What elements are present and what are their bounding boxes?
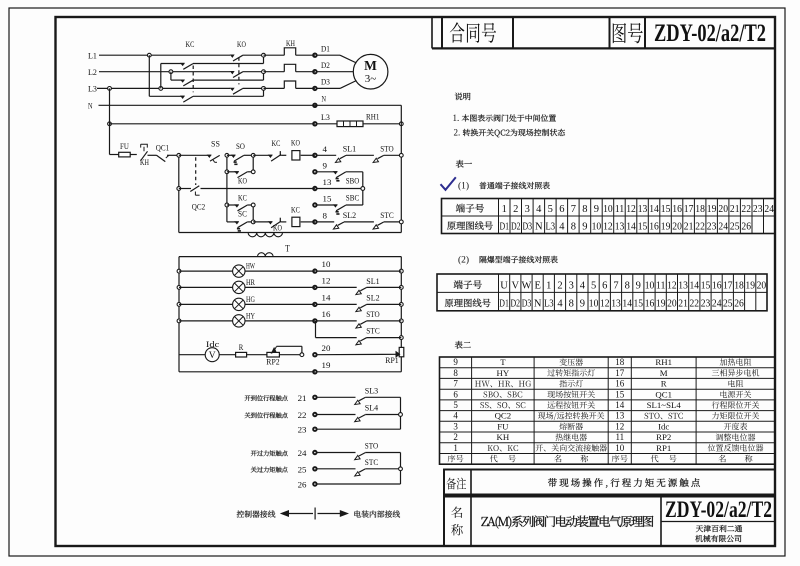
svg-text:22: 22	[741, 204, 751, 215]
svg-text:2.: 2.	[454, 128, 461, 138]
svg-text:26: 26	[298, 480, 308, 490]
svg-text:N: N	[322, 94, 327, 104]
svg-text:RP2: RP2	[656, 432, 671, 442]
svg-text:2: 2	[513, 204, 518, 215]
svg-text:13: 13	[678, 280, 688, 291]
svg-text:RP2: RP2	[266, 357, 279, 367]
svg-text:5: 5	[548, 204, 553, 215]
svg-text:L1: L1	[88, 51, 97, 61]
svg-text:17: 17	[684, 204, 694, 215]
svg-text:SL3: SL3	[365, 386, 378, 396]
svg-text:ZDY-02/a2/T2: ZDY-02/a2/T2	[654, 20, 766, 47]
svg-text:7: 7	[613, 280, 618, 291]
svg-text:7: 7	[571, 204, 576, 215]
svg-text:11: 11	[656, 280, 666, 291]
svg-text:15: 15	[638, 221, 648, 232]
svg-text:13: 13	[615, 221, 625, 232]
svg-text:4: 4	[323, 144, 328, 154]
svg-text:14: 14	[622, 299, 632, 310]
svg-text:RH1: RH1	[655, 357, 672, 367]
svg-text:KH: KH	[497, 432, 510, 442]
svg-text:16: 16	[645, 299, 655, 310]
svg-text:4: 4	[580, 280, 586, 291]
svg-text:12: 12	[603, 221, 613, 232]
svg-text:FU: FU	[497, 421, 509, 431]
svg-text:24: 24	[764, 204, 774, 215]
svg-text:3~: 3~	[365, 73, 377, 85]
svg-text:12: 12	[615, 421, 624, 431]
svg-text:12: 12	[667, 280, 677, 291]
svg-text:8: 8	[569, 299, 574, 310]
svg-text:13: 13	[611, 299, 621, 310]
svg-text:15: 15	[634, 299, 644, 310]
svg-text:Idc: Idc	[206, 339, 220, 349]
svg-text:KC: KC	[238, 193, 247, 203]
svg-text:KC: KC	[291, 205, 300, 215]
svg-text:11: 11	[615, 432, 624, 442]
svg-text:RP1: RP1	[385, 355, 398, 365]
svg-text:1: 1	[453, 443, 458, 453]
svg-text:N: N	[535, 221, 543, 232]
svg-text:26: 26	[734, 299, 744, 310]
svg-text:9: 9	[453, 357, 458, 367]
svg-text:22: 22	[298, 410, 307, 420]
svg-text:4: 4	[559, 221, 565, 232]
svg-text:RH1: RH1	[366, 112, 379, 122]
svg-text:1: 1	[546, 280, 551, 291]
svg-text:10: 10	[645, 280, 655, 291]
svg-text:24: 24	[718, 221, 728, 232]
svg-text:4: 4	[453, 411, 458, 421]
svg-text:L3: L3	[321, 112, 330, 122]
svg-text:16: 16	[712, 280, 722, 291]
svg-text:KC: KC	[272, 138, 281, 148]
svg-text:SL2: SL2	[343, 210, 356, 220]
svg-text:(2): (2)	[458, 255, 469, 266]
svg-text:21: 21	[678, 299, 688, 310]
svg-text:15: 15	[661, 204, 671, 215]
svg-text:19: 19	[707, 204, 717, 215]
svg-text:V: V	[512, 280, 520, 291]
svg-text:21: 21	[684, 221, 694, 232]
svg-text:2: 2	[557, 280, 562, 291]
svg-text:ZDY-02/a2/T2: ZDY-02/a2/T2	[665, 497, 772, 522]
svg-text:14: 14	[649, 204, 659, 215]
svg-text:9: 9	[594, 204, 599, 215]
svg-text:12: 12	[322, 275, 331, 285]
svg-text:21: 21	[298, 393, 307, 403]
svg-text:12: 12	[600, 299, 610, 310]
svg-text:L2: L2	[88, 67, 97, 77]
svg-text:3: 3	[453, 421, 458, 431]
svg-text:D2: D2	[511, 299, 521, 310]
svg-text:8: 8	[625, 280, 630, 291]
svg-text:D2: D2	[321, 60, 330, 70]
svg-text:D1: D1	[500, 221, 510, 232]
svg-text:9: 9	[580, 299, 585, 310]
svg-text:3: 3	[525, 204, 530, 215]
svg-text:16: 16	[672, 204, 682, 215]
svg-text:23: 23	[701, 299, 711, 310]
svg-text:KC: KC	[186, 39, 195, 49]
svg-text:KO: KO	[238, 176, 247, 186]
svg-text:6: 6	[602, 280, 607, 291]
svg-text:6: 6	[453, 389, 458, 399]
svg-text:13: 13	[323, 177, 332, 187]
svg-text:17: 17	[615, 368, 625, 378]
svg-text:QC2: QC2	[192, 202, 205, 212]
svg-text:QC1: QC1	[156, 143, 169, 153]
svg-text:23: 23	[753, 204, 763, 215]
svg-text:HY: HY	[246, 310, 255, 320]
svg-text:14: 14	[690, 280, 700, 291]
svg-text:L3: L3	[88, 84, 97, 94]
svg-text:HY: HY	[497, 368, 510, 378]
svg-text:D1: D1	[321, 44, 330, 54]
svg-text:21: 21	[730, 204, 740, 215]
svg-text:12: 12	[626, 204, 636, 215]
svg-text:14: 14	[615, 400, 625, 410]
svg-text:D3: D3	[321, 77, 330, 87]
svg-text:6: 6	[559, 204, 564, 215]
svg-text:KH: KH	[140, 157, 149, 167]
svg-text:SL4: SL4	[365, 403, 379, 413]
svg-text:3: 3	[569, 280, 574, 291]
svg-text:FU: FU	[120, 141, 130, 151]
svg-text:HW: HW	[246, 261, 255, 271]
svg-text:8: 8	[453, 368, 458, 378]
svg-text:1: 1	[502, 204, 507, 215]
svg-text:25: 25	[723, 299, 733, 310]
svg-text:HG: HG	[246, 294, 255, 304]
svg-text:QC1: QC1	[655, 389, 672, 399]
svg-text:STO: STO	[380, 144, 393, 154]
svg-text:KH: KH	[286, 38, 295, 48]
svg-text:SS: SS	[211, 139, 220, 149]
svg-text:5: 5	[591, 280, 596, 291]
svg-text:SBC: SBC	[346, 193, 360, 203]
svg-text:23: 23	[707, 221, 717, 232]
svg-text:5: 5	[453, 400, 458, 410]
svg-text:19: 19	[322, 360, 331, 370]
svg-text:10: 10	[603, 204, 613, 215]
svg-text:20: 20	[672, 221, 682, 232]
svg-text:D3: D3	[523, 221, 533, 232]
svg-text:V: V	[209, 351, 216, 361]
svg-text:13: 13	[615, 411, 625, 421]
svg-text:17: 17	[723, 280, 733, 291]
svg-text:7: 7	[453, 379, 458, 389]
svg-text:4: 4	[536, 204, 542, 215]
svg-text:Idc: Idc	[658, 421, 669, 431]
svg-text:26: 26	[741, 221, 751, 232]
svg-text:22: 22	[695, 221, 705, 232]
svg-text:18: 18	[695, 204, 705, 215]
svg-text:9: 9	[582, 221, 587, 232]
svg-text:14: 14	[626, 221, 636, 232]
svg-text:T: T	[500, 357, 506, 367]
svg-text:16: 16	[615, 379, 625, 389]
svg-text:4: 4	[557, 299, 563, 310]
svg-text:19: 19	[661, 221, 671, 232]
svg-text:(1): (1)	[458, 181, 469, 192]
svg-text:25: 25	[730, 221, 740, 232]
svg-text:15: 15	[323, 194, 332, 204]
svg-text:D2: D2	[511, 221, 521, 232]
svg-text:2: 2	[453, 432, 458, 442]
svg-text:STO: STO	[366, 309, 379, 319]
svg-text:L3: L3	[546, 221, 556, 232]
svg-text:9: 9	[636, 280, 641, 291]
svg-text:SBO: SBO	[346, 176, 359, 186]
svg-text:23: 23	[298, 425, 307, 435]
svg-text:20: 20	[757, 280, 767, 291]
svg-text:SC: SC	[238, 209, 247, 219]
svg-text:16: 16	[649, 221, 659, 232]
svg-text:10: 10	[589, 299, 599, 310]
svg-text:RP1: RP1	[656, 443, 671, 453]
svg-text:STC: STC	[366, 326, 380, 336]
svg-text:24: 24	[298, 448, 308, 458]
svg-text:18: 18	[615, 357, 625, 367]
svg-text:SO: SO	[236, 141, 245, 151]
svg-text:10: 10	[592, 221, 602, 232]
svg-text:R: R	[239, 342, 244, 352]
svg-text:9: 9	[323, 161, 328, 171]
svg-text:STO: STO	[365, 441, 378, 451]
svg-text:10: 10	[615, 443, 625, 453]
svg-text:SL1: SL1	[366, 276, 379, 286]
svg-text:22: 22	[690, 299, 700, 310]
svg-text:HR: HR	[246, 277, 255, 287]
svg-text:N: N	[534, 299, 542, 310]
svg-text:R: R	[661, 379, 667, 389]
svg-text:D1: D1	[499, 299, 509, 310]
svg-text:QC2: QC2	[495, 411, 512, 421]
svg-text:16: 16	[322, 309, 332, 319]
svg-text:T: T	[285, 244, 290, 254]
svg-text:M: M	[364, 58, 377, 73]
svg-text:E: E	[534, 280, 540, 291]
svg-text:SL2: SL2	[366, 293, 379, 303]
svg-text:8: 8	[323, 211, 328, 221]
svg-text:8: 8	[571, 221, 576, 232]
svg-text:25: 25	[298, 464, 307, 474]
svg-text:N: N	[88, 101, 93, 111]
svg-text:8: 8	[582, 204, 587, 215]
svg-text:15: 15	[701, 280, 711, 291]
svg-text:SL1~SL4: SL1~SL4	[647, 400, 682, 410]
svg-text:24: 24	[712, 299, 722, 310]
svg-text:STC: STC	[380, 210, 394, 220]
svg-text:W: W	[522, 280, 532, 291]
svg-text:13: 13	[638, 204, 648, 215]
svg-text:10: 10	[322, 259, 331, 269]
svg-text:19: 19	[656, 299, 666, 310]
svg-text:14: 14	[322, 292, 332, 302]
svg-text:11: 11	[615, 204, 625, 215]
svg-text:1.: 1.	[453, 113, 460, 123]
svg-text:15: 15	[615, 389, 625, 399]
svg-text:20: 20	[667, 299, 677, 310]
svg-text:20: 20	[718, 204, 728, 215]
svg-text:SL1: SL1	[343, 144, 356, 154]
svg-text:KO: KO	[237, 39, 246, 49]
svg-text:U: U	[500, 280, 508, 291]
svg-text:19: 19	[745, 280, 755, 291]
svg-text:KO: KO	[291, 138, 300, 148]
svg-text:L3: L3	[544, 299, 554, 310]
svg-text:20: 20	[322, 343, 331, 353]
svg-text:D3: D3	[522, 299, 532, 310]
svg-text:M: M	[660, 368, 668, 378]
svg-text:18: 18	[734, 280, 744, 291]
svg-text:STC: STC	[365, 457, 379, 467]
